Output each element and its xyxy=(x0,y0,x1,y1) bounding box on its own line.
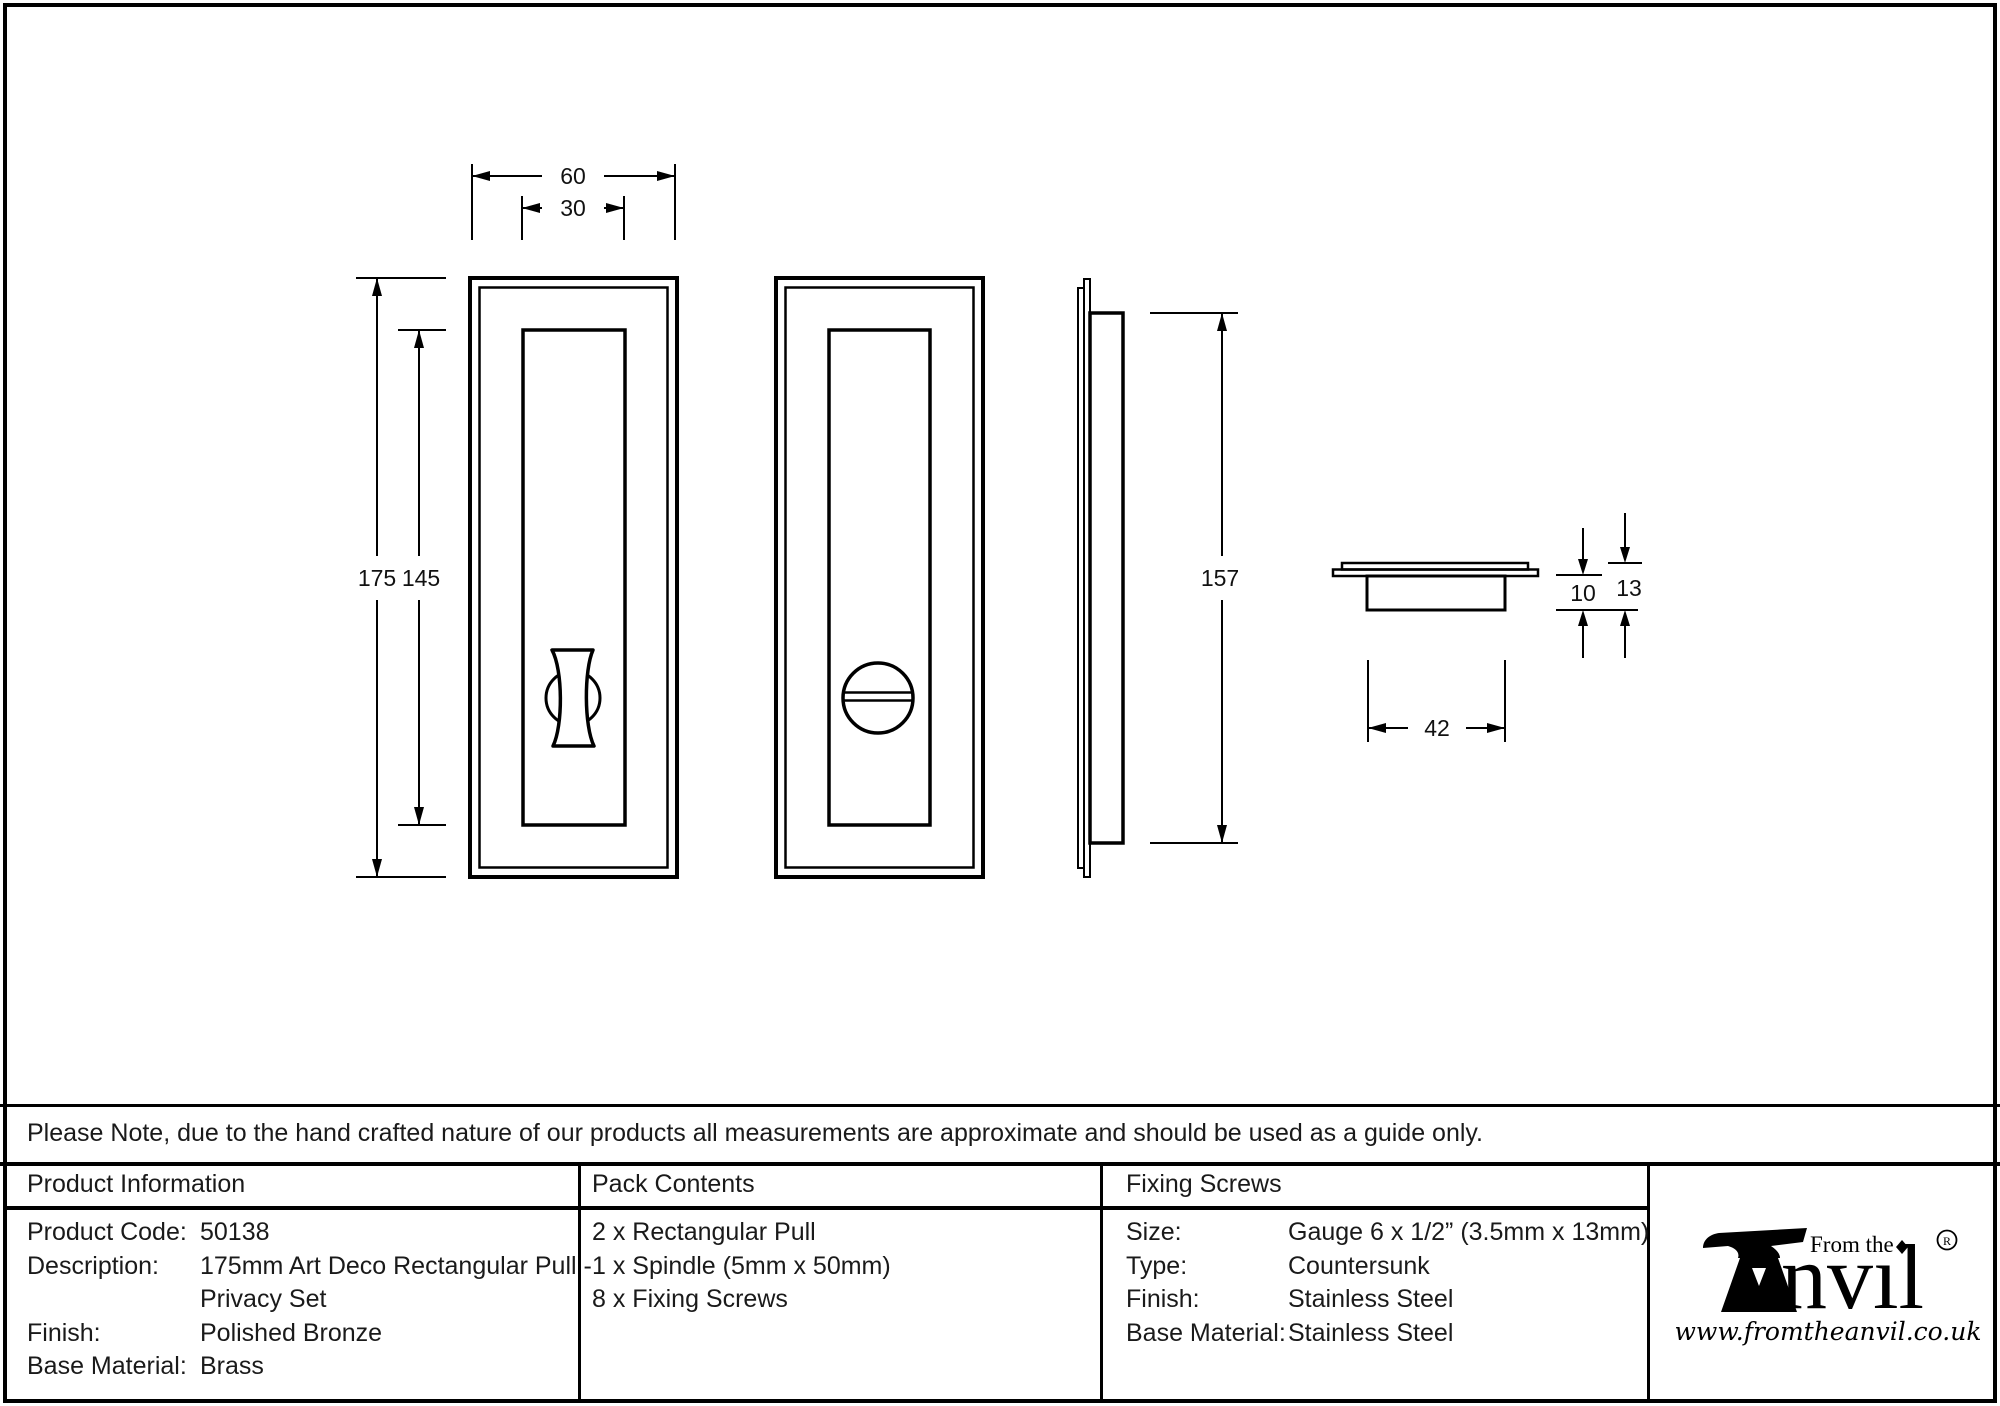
fixing-screws-value: Countersunk xyxy=(1288,1250,1649,1284)
product-info-label: Finish: xyxy=(27,1317,200,1351)
technical-drawing: 60 30 175 xyxy=(0,0,2000,1104)
thumbturn-icon xyxy=(546,650,600,746)
coin-slot-icon xyxy=(843,663,913,733)
product-info-value: Polished Bronze xyxy=(200,1317,592,1351)
dim-label-recess-depth: 10 xyxy=(1570,580,1596,606)
header-row-bottom-rule xyxy=(7,1206,1647,1210)
fixing-screws-value: Stainless Steel xyxy=(1288,1283,1649,1317)
registered-letter: R xyxy=(1943,1234,1951,1248)
spec-sheet-page: 60 30 175 xyxy=(0,0,2000,1406)
logo-brand-text: nvıl xyxy=(1781,1226,1924,1328)
product-info-label: Base Material: xyxy=(27,1350,200,1384)
fixing-screws-label: Size: xyxy=(1126,1216,1288,1250)
divider-pack-fixing xyxy=(1100,1162,1103,1400)
pack-contents-header: Pack Contents xyxy=(592,1162,755,1206)
dim-label-backbox-height: 157 xyxy=(1201,565,1239,591)
pack-item: 1 x Spindle (5mm x 50mm) xyxy=(592,1250,1092,1284)
product-info-label xyxy=(27,1283,200,1317)
dim-label-total-depth: 13 xyxy=(1616,575,1642,601)
fixing-screws-table: Size: Gauge 6 x 1/2” (3.5mm x 13mm) Type… xyxy=(1126,1216,1641,1350)
end-profile-view xyxy=(1333,563,1538,610)
dim-backbox-width: 42 xyxy=(1368,660,1505,742)
from-the-anvil-logo: From the nvıl R www.fromtheanvil.co.uk xyxy=(1647,1162,1996,1400)
product-info-label: Product Code: xyxy=(27,1216,200,1250)
product-info-value: 50138 xyxy=(200,1216,592,1250)
fixing-screws-label: Finish: xyxy=(1126,1283,1288,1317)
pack-item: 2 x Rectangular Pull xyxy=(592,1216,1092,1250)
front-view-coin-release xyxy=(776,278,983,877)
product-info-value: 175mm Art Deco Rectangular Pull - xyxy=(200,1250,592,1284)
dim-label-backbox-width: 42 xyxy=(1424,715,1450,741)
dim-total-depth: 13 xyxy=(1608,513,1642,658)
dim-label-inner-height: 145 xyxy=(402,565,440,591)
fixing-screws-label: Base Material: xyxy=(1126,1317,1288,1351)
product-info-table: Product Code: 50138 Description: 175mm A… xyxy=(27,1216,567,1384)
fixing-screws-header: Fixing Screws xyxy=(1126,1162,1282,1206)
logo-website: www.fromtheanvil.co.uk xyxy=(1675,1317,1982,1346)
side-profile-view xyxy=(1078,279,1123,877)
dim-inner-width: 30 xyxy=(522,195,624,240)
pack-item: 8 x Fixing Screws xyxy=(592,1283,1092,1317)
product-info-header: Product Information xyxy=(27,1162,245,1206)
dim-label-inner-width: 30 xyxy=(560,195,586,221)
front-view-thumbturn xyxy=(470,278,677,877)
pack-contents-list: 2 x Rectangular Pull 1 x Spindle (5mm x … xyxy=(592,1216,1092,1317)
product-info-value: Privacy Set xyxy=(200,1283,592,1317)
measurement-note: Please Note, due to the hand crafted nat… xyxy=(27,1104,1483,1162)
product-info-value: Brass xyxy=(200,1350,592,1384)
dim-inner-height: 145 xyxy=(398,330,446,825)
fixing-screws-value: Gauge 6 x 1/2” (3.5mm x 13mm) xyxy=(1288,1216,1649,1250)
fixing-screws-value: Stainless Steel xyxy=(1288,1317,1649,1351)
dim-label-outer-width: 60 xyxy=(560,163,586,189)
dim-backbox-height: 157 xyxy=(1150,313,1239,843)
fixing-screws-label: Type: xyxy=(1126,1250,1288,1284)
registered-trademark-icon: R xyxy=(1938,1231,1957,1250)
dim-label-outer-height: 175 xyxy=(358,565,396,591)
product-info-label: Description: xyxy=(27,1250,200,1284)
